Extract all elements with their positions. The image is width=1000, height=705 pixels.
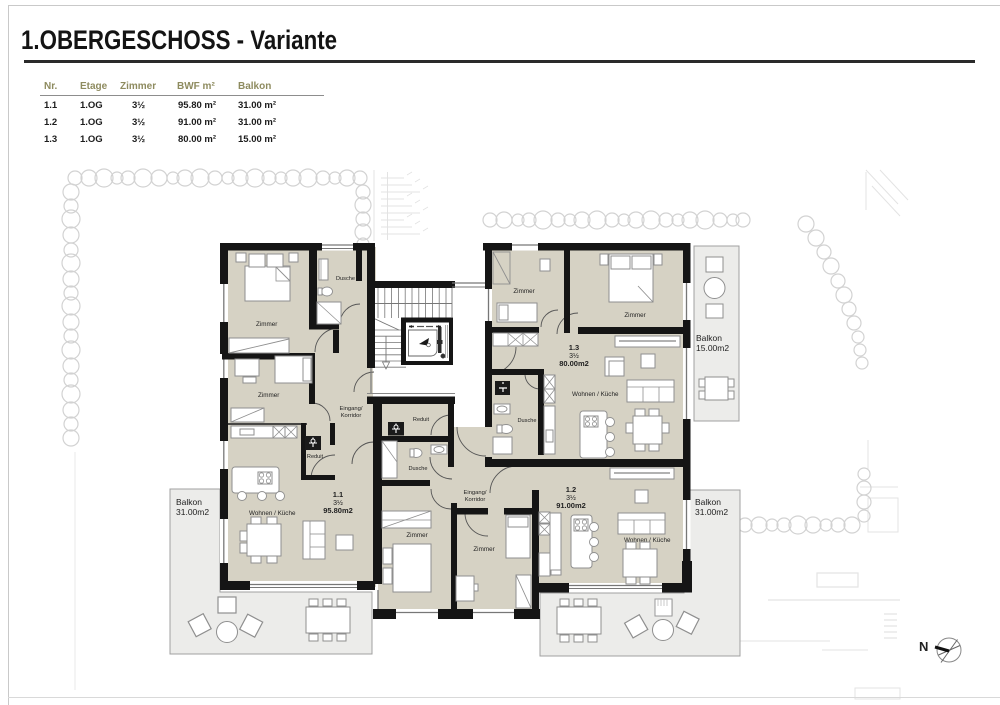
svg-text:Balkon: Balkon xyxy=(696,333,722,343)
svg-text:Reduit: Reduit xyxy=(413,417,430,423)
svg-text:Dusche: Dusche xyxy=(336,276,355,282)
svg-text:N: N xyxy=(919,639,928,654)
svg-text:Balkon: Balkon xyxy=(176,497,202,507)
svg-text:31.00m2: 31.00m2 xyxy=(695,507,728,517)
svg-text:Korridor: Korridor xyxy=(465,497,486,503)
svg-text:15.00m2: 15.00m2 xyxy=(696,343,729,353)
svg-text:Wohnen / Küche: Wohnen / Küche xyxy=(572,391,619,398)
svg-text:31.00m2: 31.00m2 xyxy=(176,507,209,517)
svg-text:Zimmer: Zimmer xyxy=(513,288,534,295)
svg-text:Reduit: Reduit xyxy=(307,454,324,460)
svg-text:Eingang/: Eingang/ xyxy=(340,406,363,412)
svg-text:1.1: 1.1 xyxy=(333,490,343,499)
svg-text:Eingang/: Eingang/ xyxy=(464,490,487,496)
svg-text:Zimmer: Zimmer xyxy=(406,532,427,539)
svg-text:Korridor: Korridor xyxy=(341,413,362,419)
svg-text:1.3: 1.3 xyxy=(569,343,579,352)
svg-text:Balkon: Balkon xyxy=(695,497,721,507)
svg-text:Zimmer: Zimmer xyxy=(473,546,494,553)
svg-text:Dusche: Dusche xyxy=(409,466,428,472)
svg-text:Dusche: Dusche xyxy=(518,418,537,424)
svg-text:1.2: 1.2 xyxy=(566,485,576,494)
svg-text:Zimmer: Zimmer xyxy=(256,321,277,328)
svg-text:95.80m2: 95.80m2 xyxy=(323,506,353,515)
svg-text:Zimmer: Zimmer xyxy=(624,312,645,319)
svg-text:Wohnen / Küche: Wohnen / Küche xyxy=(249,510,296,517)
svg-text:Zimmer: Zimmer xyxy=(258,392,279,399)
svg-text:91.00m2: 91.00m2 xyxy=(556,501,586,510)
svg-text:80.00m2: 80.00m2 xyxy=(559,359,589,368)
